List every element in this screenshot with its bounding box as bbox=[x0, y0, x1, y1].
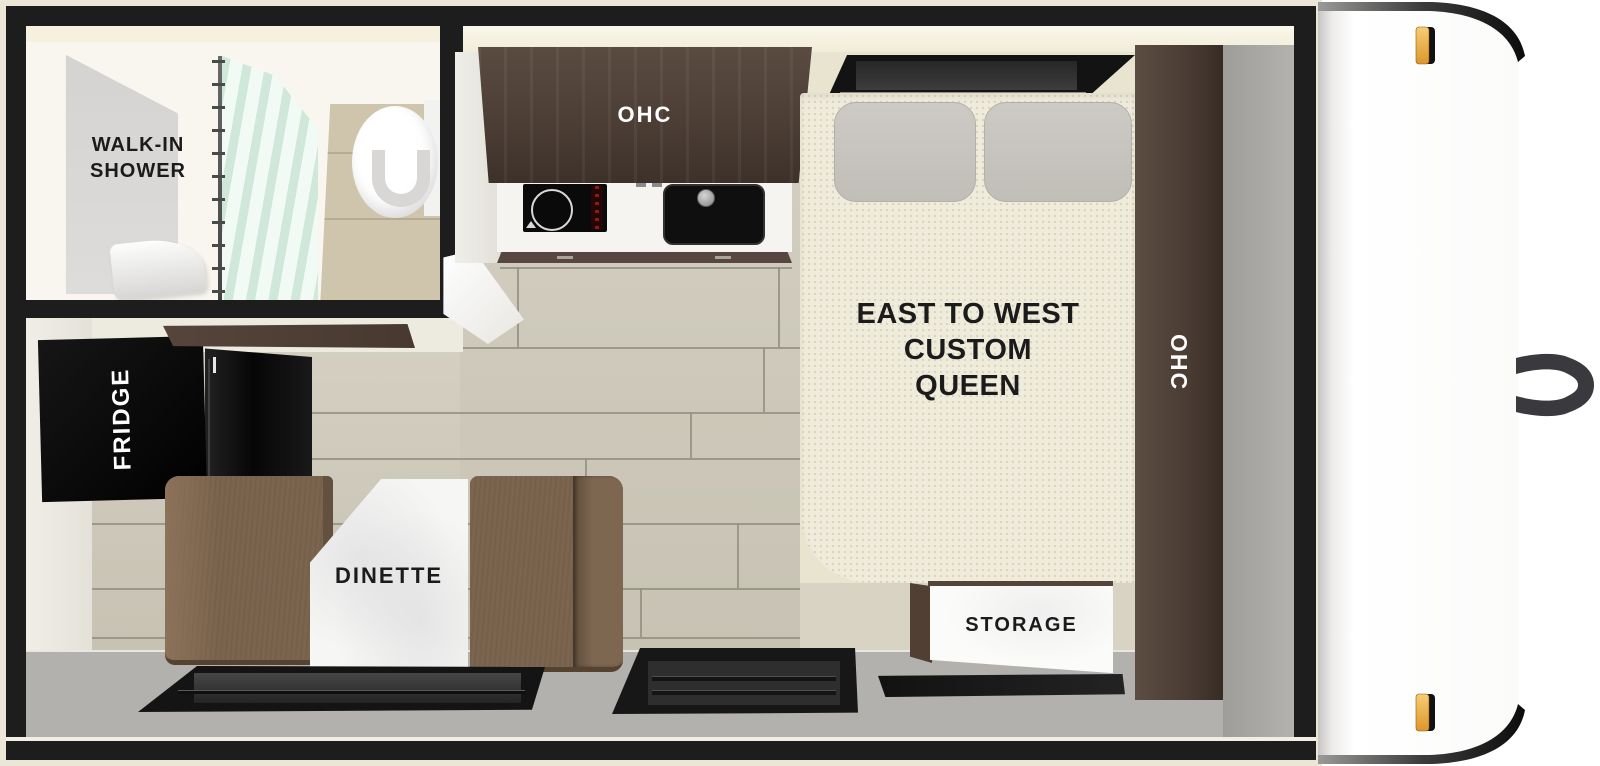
bed-label: EAST TO WEST CUSTOM QUEEN bbox=[818, 296, 1118, 404]
floor-seam bbox=[640, 588, 642, 637]
counter-fitting bbox=[636, 183, 646, 187]
floor-seam bbox=[500, 267, 792, 269]
kitchen-overhead-cabinet: OHC bbox=[478, 47, 812, 183]
floorplan-diagram: WALK-IN SHOWER OHC EAST TO WEST C bbox=[0, 0, 1600, 766]
floor-seam bbox=[763, 347, 765, 412]
floor-seam bbox=[737, 523, 739, 588]
bathroom-ceiling-band bbox=[26, 26, 440, 42]
entry-step bbox=[612, 648, 858, 714]
walk-in-shower-label: WALK-IN SHOWER bbox=[40, 132, 236, 184]
kitchen-ohc-label: OHC bbox=[618, 102, 673, 128]
curtain-hooks bbox=[212, 60, 225, 296]
fridge-countertop bbox=[163, 324, 415, 348]
cooktop-icon bbox=[526, 221, 536, 228]
pillow-left bbox=[834, 102, 976, 202]
marker-light-top bbox=[1416, 27, 1435, 64]
pillow-right bbox=[984, 102, 1132, 202]
burner-ring bbox=[531, 189, 573, 231]
floor-seam bbox=[778, 267, 780, 347]
bathroom-wall-bottom bbox=[26, 300, 463, 318]
bedside-ohc-label: OHC bbox=[1135, 338, 1223, 386]
dinette-bench-right bbox=[470, 476, 623, 672]
tongue-jack bbox=[1516, 354, 1594, 416]
dinette-bench-left bbox=[165, 476, 333, 665]
floor-seam bbox=[690, 412, 692, 458]
dinette-label: DINETTE bbox=[310, 563, 468, 589]
faucet bbox=[697, 189, 715, 207]
offdoor-wall bbox=[1223, 45, 1294, 737]
kitchen-counter-edge bbox=[497, 252, 792, 263]
floor-seam bbox=[517, 267, 519, 347]
floor-seam bbox=[463, 347, 800, 349]
counter-fitting bbox=[652, 183, 662, 187]
toilet-seat-shadow bbox=[372, 150, 430, 207]
cooktop-controls bbox=[591, 186, 603, 230]
bed-window bbox=[828, 55, 1135, 97]
marker-light-bottom bbox=[1416, 694, 1435, 731]
fridge-label: FRIDGE bbox=[107, 367, 138, 470]
cooktop bbox=[523, 184, 607, 232]
storage-mat bbox=[878, 674, 1125, 697]
storage-side-panel bbox=[910, 583, 932, 663]
dinette-window bbox=[138, 666, 545, 712]
wall-base-line bbox=[6, 737, 1316, 741]
kitchen-sink bbox=[663, 184, 765, 245]
storage-label: STORAGE bbox=[930, 614, 1113, 637]
storage-compartment: STORAGE bbox=[930, 586, 1113, 674]
front-cap bbox=[1316, 0, 1600, 766]
front-cap-body bbox=[1318, 10, 1518, 756]
